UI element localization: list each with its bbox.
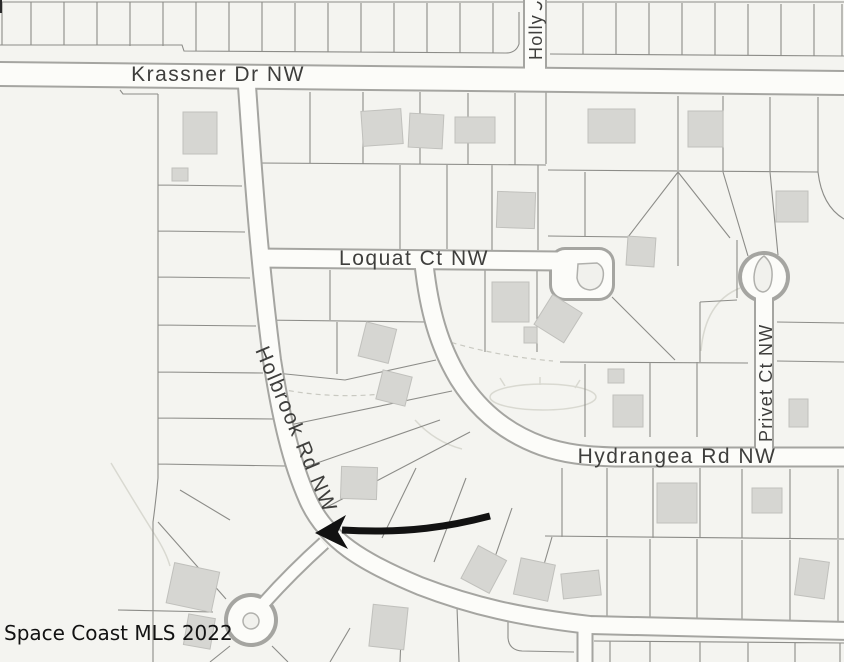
building (361, 109, 403, 147)
parcel-map-image: Krassner Dr NW Holly Loquat Ct NW Holbro… (0, 0, 844, 662)
building (613, 395, 643, 427)
building (789, 399, 808, 427)
building (172, 168, 188, 181)
building (408, 113, 444, 149)
building (496, 191, 535, 228)
road-map-svg: Krassner Dr NW Holly Loquat Ct NW Holbro… (0, 0, 844, 662)
building (340, 466, 377, 499)
building (561, 570, 601, 599)
building (626, 236, 656, 267)
street-label-hydrangea: Hydrangea Rd NW (578, 445, 777, 468)
attribution-watermark: Space Coast MLS 2022 (4, 621, 233, 645)
road-krassner (0, 74, 844, 83)
building (524, 327, 537, 343)
building (166, 563, 220, 613)
street-label-privet: Privet Ct NW (756, 324, 776, 442)
street-label-holly: Holly (526, 14, 546, 60)
building (183, 112, 217, 154)
building (513, 558, 555, 601)
building (752, 488, 782, 513)
building (455, 117, 495, 143)
building (492, 282, 529, 322)
building (588, 109, 635, 143)
street-label-krassner: Krassner Dr NW (131, 63, 305, 86)
building (795, 558, 830, 599)
building (369, 604, 408, 649)
map-background (0, 0, 844, 662)
edge-artifact (0, 0, 2, 13)
building (608, 369, 624, 383)
building (376, 370, 412, 406)
street-label-loquat: Loquat Ct NW (339, 247, 489, 270)
building (657, 483, 697, 523)
building (688, 111, 723, 147)
building (776, 191, 808, 222)
